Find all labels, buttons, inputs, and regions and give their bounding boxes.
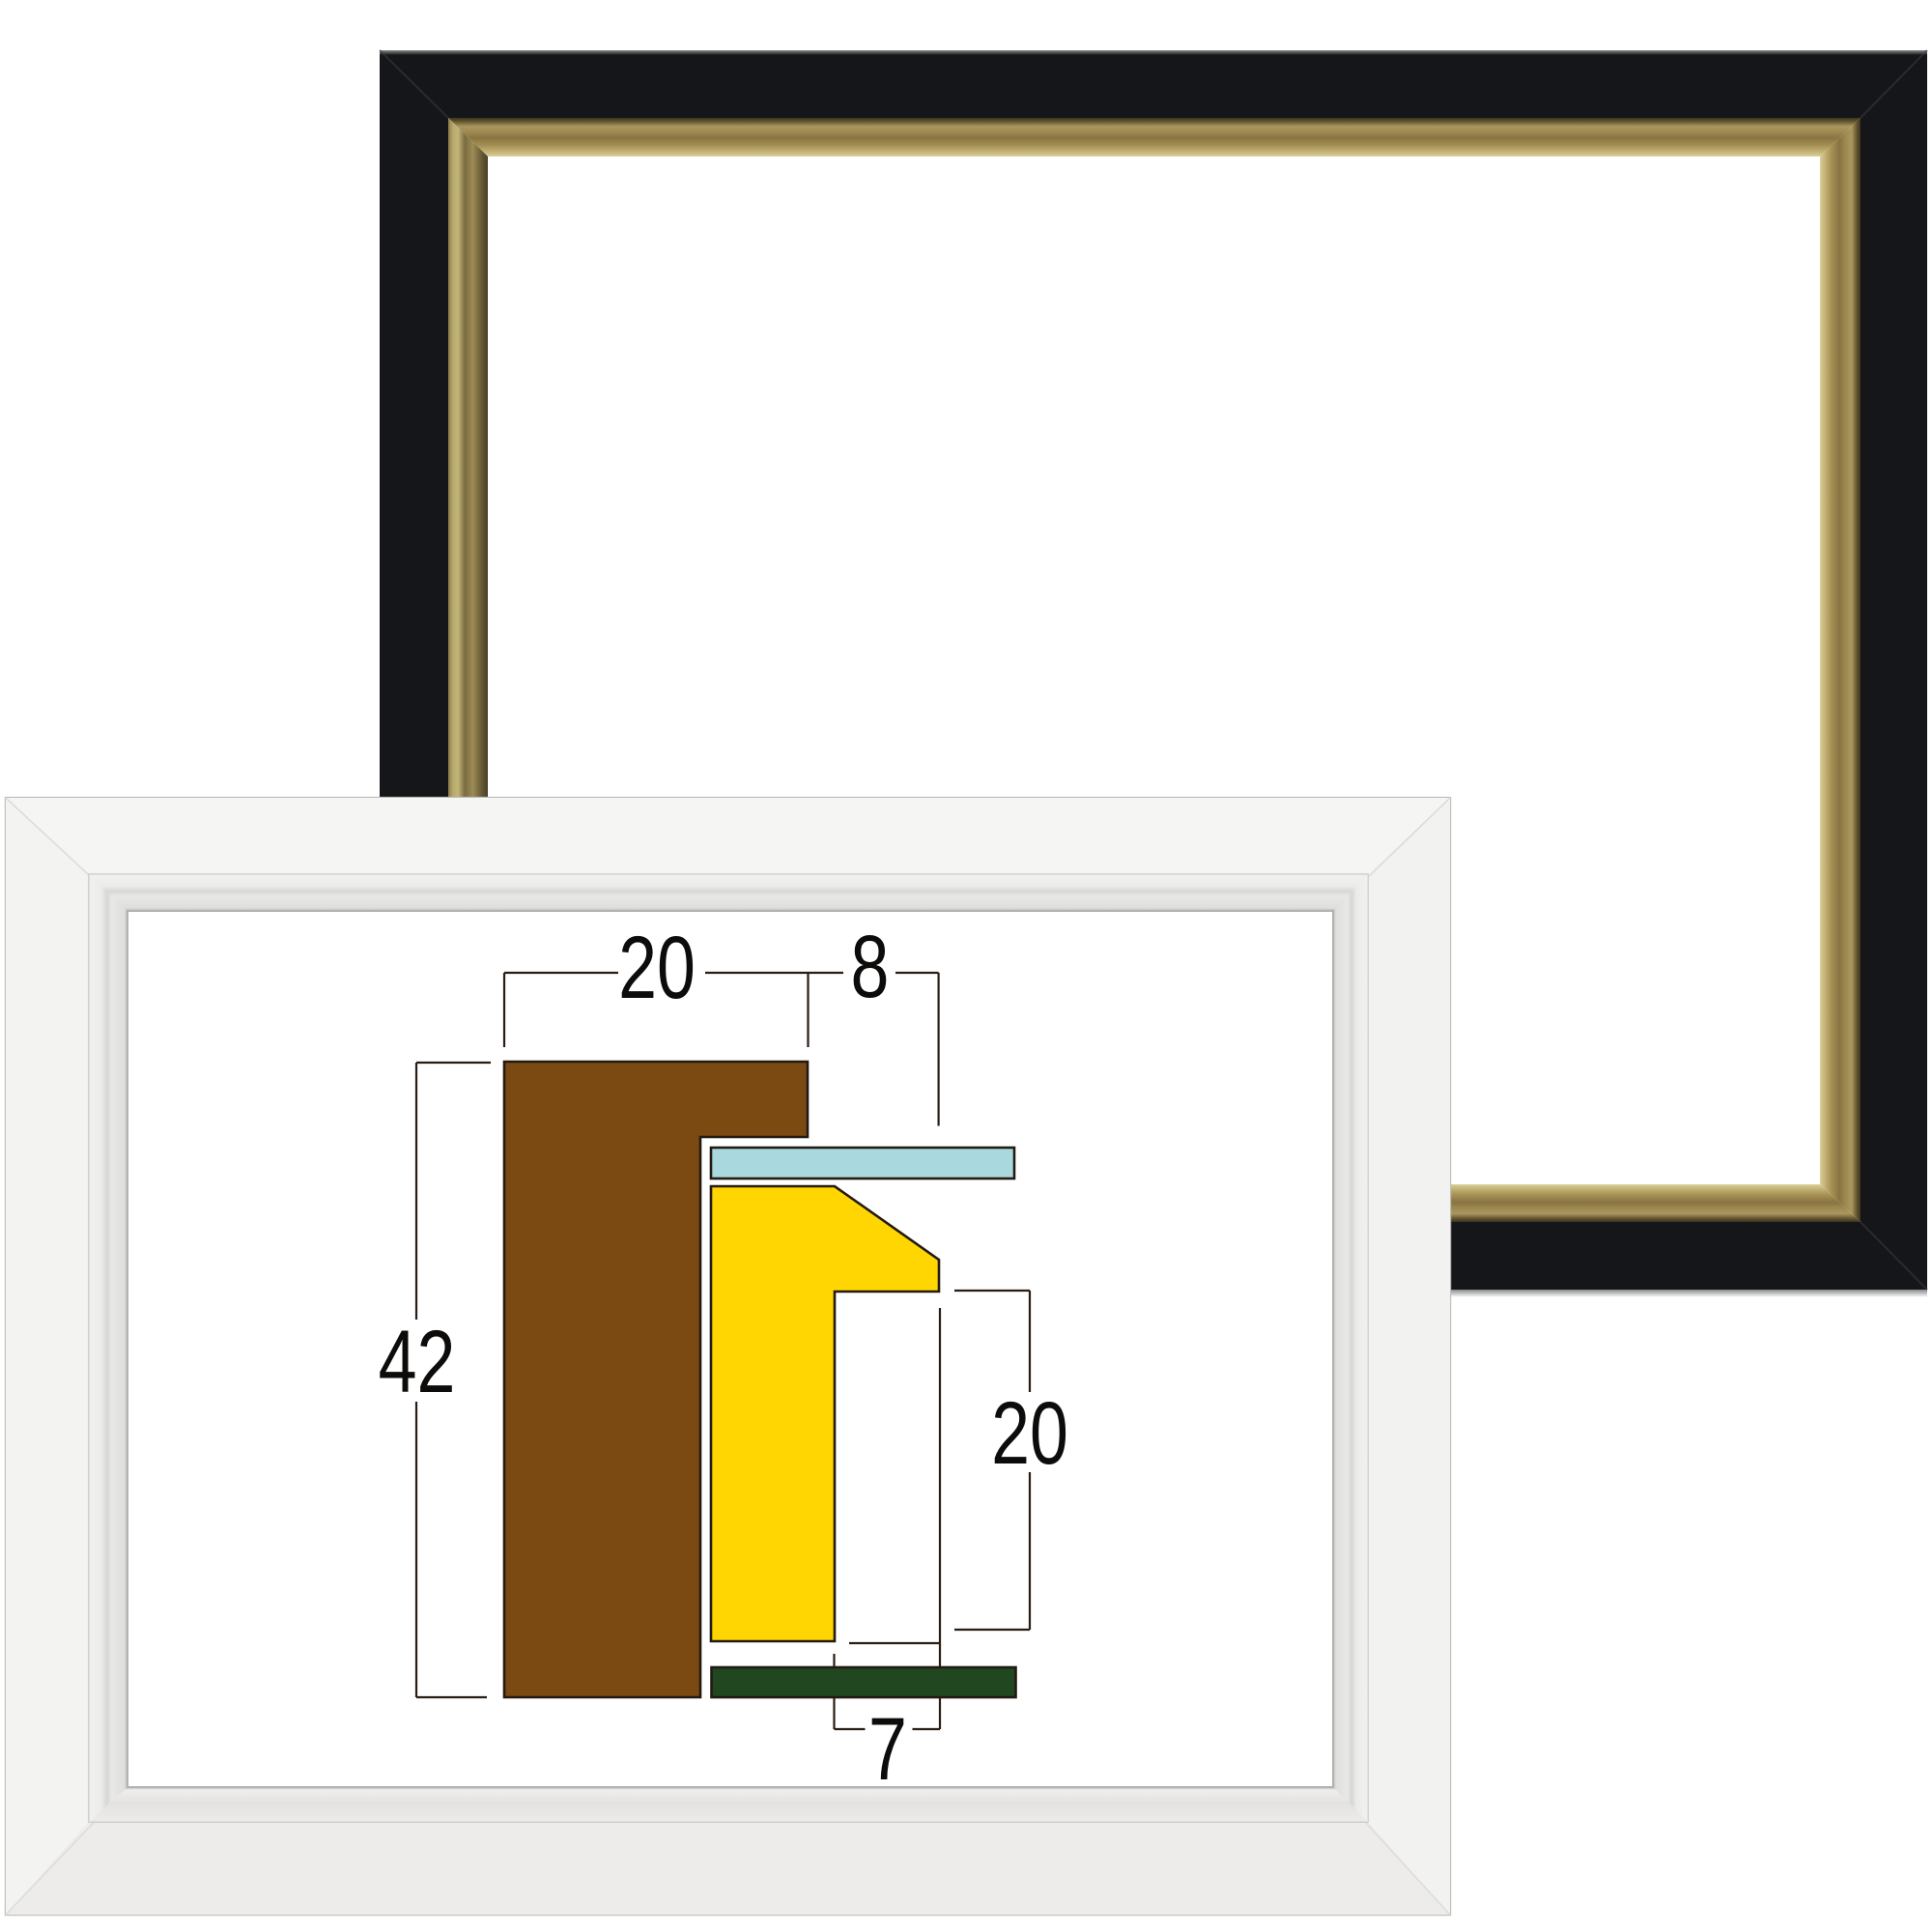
svg-text:8: 8 [851,917,890,1016]
svg-text:42: 42 [379,1312,456,1411]
svg-text:20: 20 [618,918,696,1017]
svg-text:20: 20 [991,1383,1068,1483]
svg-text:7: 7 [868,1699,907,1799]
